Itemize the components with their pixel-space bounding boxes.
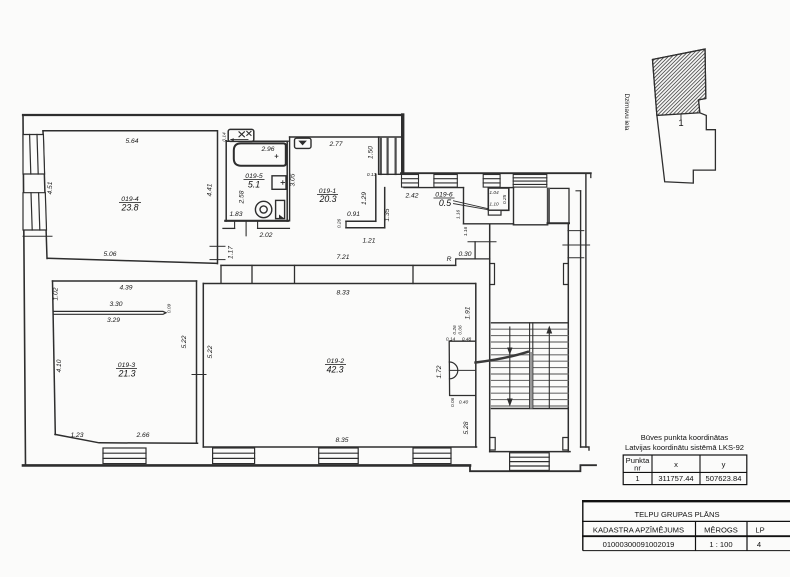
- svg-text:0.14: 0.14: [446, 337, 456, 343]
- svg-text:0.09: 0.09: [167, 304, 173, 314]
- svg-text:0.91: 0.91: [347, 211, 360, 218]
- svg-text:1.04: 1.04: [489, 190, 499, 196]
- svg-text:5.22: 5.22: [181, 335, 188, 348]
- svg-text:2.58: 2.58: [239, 190, 246, 204]
- svg-text:4.39: 4.39: [119, 285, 132, 292]
- svg-text:2.77: 2.77: [328, 141, 342, 148]
- svg-text:42.3: 42.3: [326, 365, 343, 375]
- svg-text:Būves punkta koordinātas: Būves punkta koordinātas: [641, 433, 729, 442]
- svg-text:4.41: 4.41: [207, 183, 214, 196]
- svg-text:MĒROGS: MĒROGS: [704, 525, 738, 534]
- svg-text:2.02: 2.02: [258, 232, 272, 239]
- svg-text:4: 4: [757, 540, 761, 549]
- svg-text:2.42: 2.42: [404, 193, 418, 200]
- svg-text:20.3: 20.3: [318, 194, 336, 204]
- svg-text:1.91: 1.91: [464, 306, 471, 319]
- svg-text:1.16: 1.16: [463, 227, 469, 237]
- svg-text:23.8: 23.8: [120, 203, 138, 213]
- svg-text:0.26: 0.26: [337, 219, 343, 229]
- svg-text:0.48: 0.48: [462, 337, 472, 343]
- svg-text:LP: LP: [755, 525, 764, 534]
- svg-text:0.25: 0.25: [502, 195, 508, 205]
- svg-text:1.10: 1.10: [489, 202, 499, 208]
- svg-text:1 : 100: 1 : 100: [709, 540, 732, 549]
- svg-text:5.06: 5.06: [103, 251, 116, 258]
- svg-text:8.33: 8.33: [336, 290, 349, 297]
- svg-text:Dzirnavu iela: Dzirnavu iela: [623, 94, 630, 131]
- svg-text:1.72: 1.72: [436, 365, 443, 378]
- svg-text:1.02: 1.02: [53, 287, 60, 300]
- svg-text:1.29: 1.29: [361, 192, 368, 205]
- svg-text:311757.44: 311757.44: [658, 474, 693, 483]
- svg-text:5.22: 5.22: [207, 345, 214, 358]
- svg-text:0.14: 0.14: [221, 132, 227, 142]
- svg-text:0.5: 0.5: [439, 198, 451, 208]
- svg-text:21.3: 21.3: [117, 369, 135, 379]
- svg-text:0.13: 0.13: [367, 172, 377, 178]
- svg-text:x: x: [674, 460, 678, 469]
- svg-text:0.40: 0.40: [459, 400, 469, 406]
- svg-text:R: R: [447, 256, 452, 263]
- svg-text:4.51: 4.51: [47, 181, 54, 194]
- svg-text:2.96: 2.96: [260, 146, 274, 153]
- svg-text:1: 1: [678, 118, 683, 129]
- svg-text:8.35: 8.35: [335, 437, 348, 444]
- svg-text:1.16: 1.16: [456, 210, 462, 220]
- svg-text:0.30: 0.30: [458, 251, 471, 258]
- svg-text:1.23: 1.23: [70, 432, 83, 439]
- svg-text:0.06: 0.06: [450, 398, 456, 408]
- svg-text:nr: nr: [634, 463, 641, 472]
- svg-text:1.35: 1.35: [384, 208, 391, 221]
- svg-text:Latvijas koordinātu sistēmā LK: Latvijas koordinātu sistēmā LKS-92: [625, 443, 744, 452]
- svg-text:01000300091002019: 01000300091002019: [603, 540, 675, 549]
- svg-text:5.64: 5.64: [125, 138, 138, 145]
- svg-text:0.06: 0.06: [458, 325, 464, 335]
- svg-text:KADASTRA APZĪMĒJUMS: KADASTRA APZĪMĒJUMS: [593, 525, 684, 534]
- svg-text:y: y: [722, 460, 726, 469]
- svg-text:507623.84: 507623.84: [706, 474, 742, 483]
- svg-text:5.28: 5.28: [463, 421, 470, 434]
- svg-text:1: 1: [635, 474, 639, 483]
- svg-text:TELPU GRUPAS PLĀNS: TELPU GRUPAS PLĀNS: [634, 510, 719, 519]
- svg-text:0.26: 0.26: [452, 325, 458, 335]
- svg-text:1.83: 1.83: [229, 211, 242, 218]
- svg-text:7.21: 7.21: [336, 254, 349, 261]
- svg-text:1.21: 1.21: [362, 238, 375, 245]
- svg-text:5.1: 5.1: [248, 180, 260, 190]
- svg-text:3.29: 3.29: [107, 317, 120, 324]
- svg-text:1.17: 1.17: [228, 246, 235, 259]
- svg-text:3.30: 3.30: [109, 301, 122, 308]
- svg-text:2.66: 2.66: [135, 432, 149, 439]
- svg-text:1.50: 1.50: [368, 146, 375, 159]
- svg-text:4.10: 4.10: [56, 359, 63, 372]
- svg-text:3.05: 3.05: [289, 173, 296, 186]
